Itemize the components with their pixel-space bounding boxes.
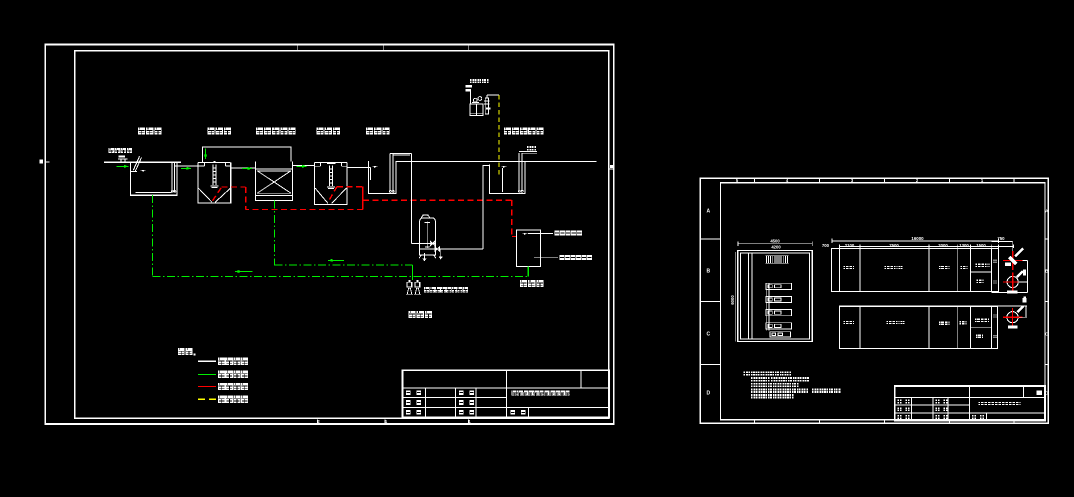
svg-text:B: B	[706, 269, 710, 275]
svg-text:D: D	[706, 391, 710, 397]
svg-text:2100: 2100	[845, 243, 855, 248]
svg-text:700: 700	[822, 243, 830, 248]
svg-text:1500: 1500	[976, 243, 986, 248]
svg-text:C: C	[706, 332, 710, 338]
svg-text:7500: 7500	[889, 243, 899, 248]
svg-text:1300: 1300	[959, 243, 969, 248]
svg-text:6000: 6000	[730, 295, 735, 305]
svg-text:4200: 4200	[771, 245, 781, 250]
svg-text:4500: 4500	[770, 238, 780, 243]
svg-text:750: 750	[997, 236, 1005, 241]
svg-text:16000: 16000	[911, 236, 924, 241]
svg-text:2000: 2000	[938, 243, 948, 248]
svg-text:A: A	[706, 209, 710, 215]
